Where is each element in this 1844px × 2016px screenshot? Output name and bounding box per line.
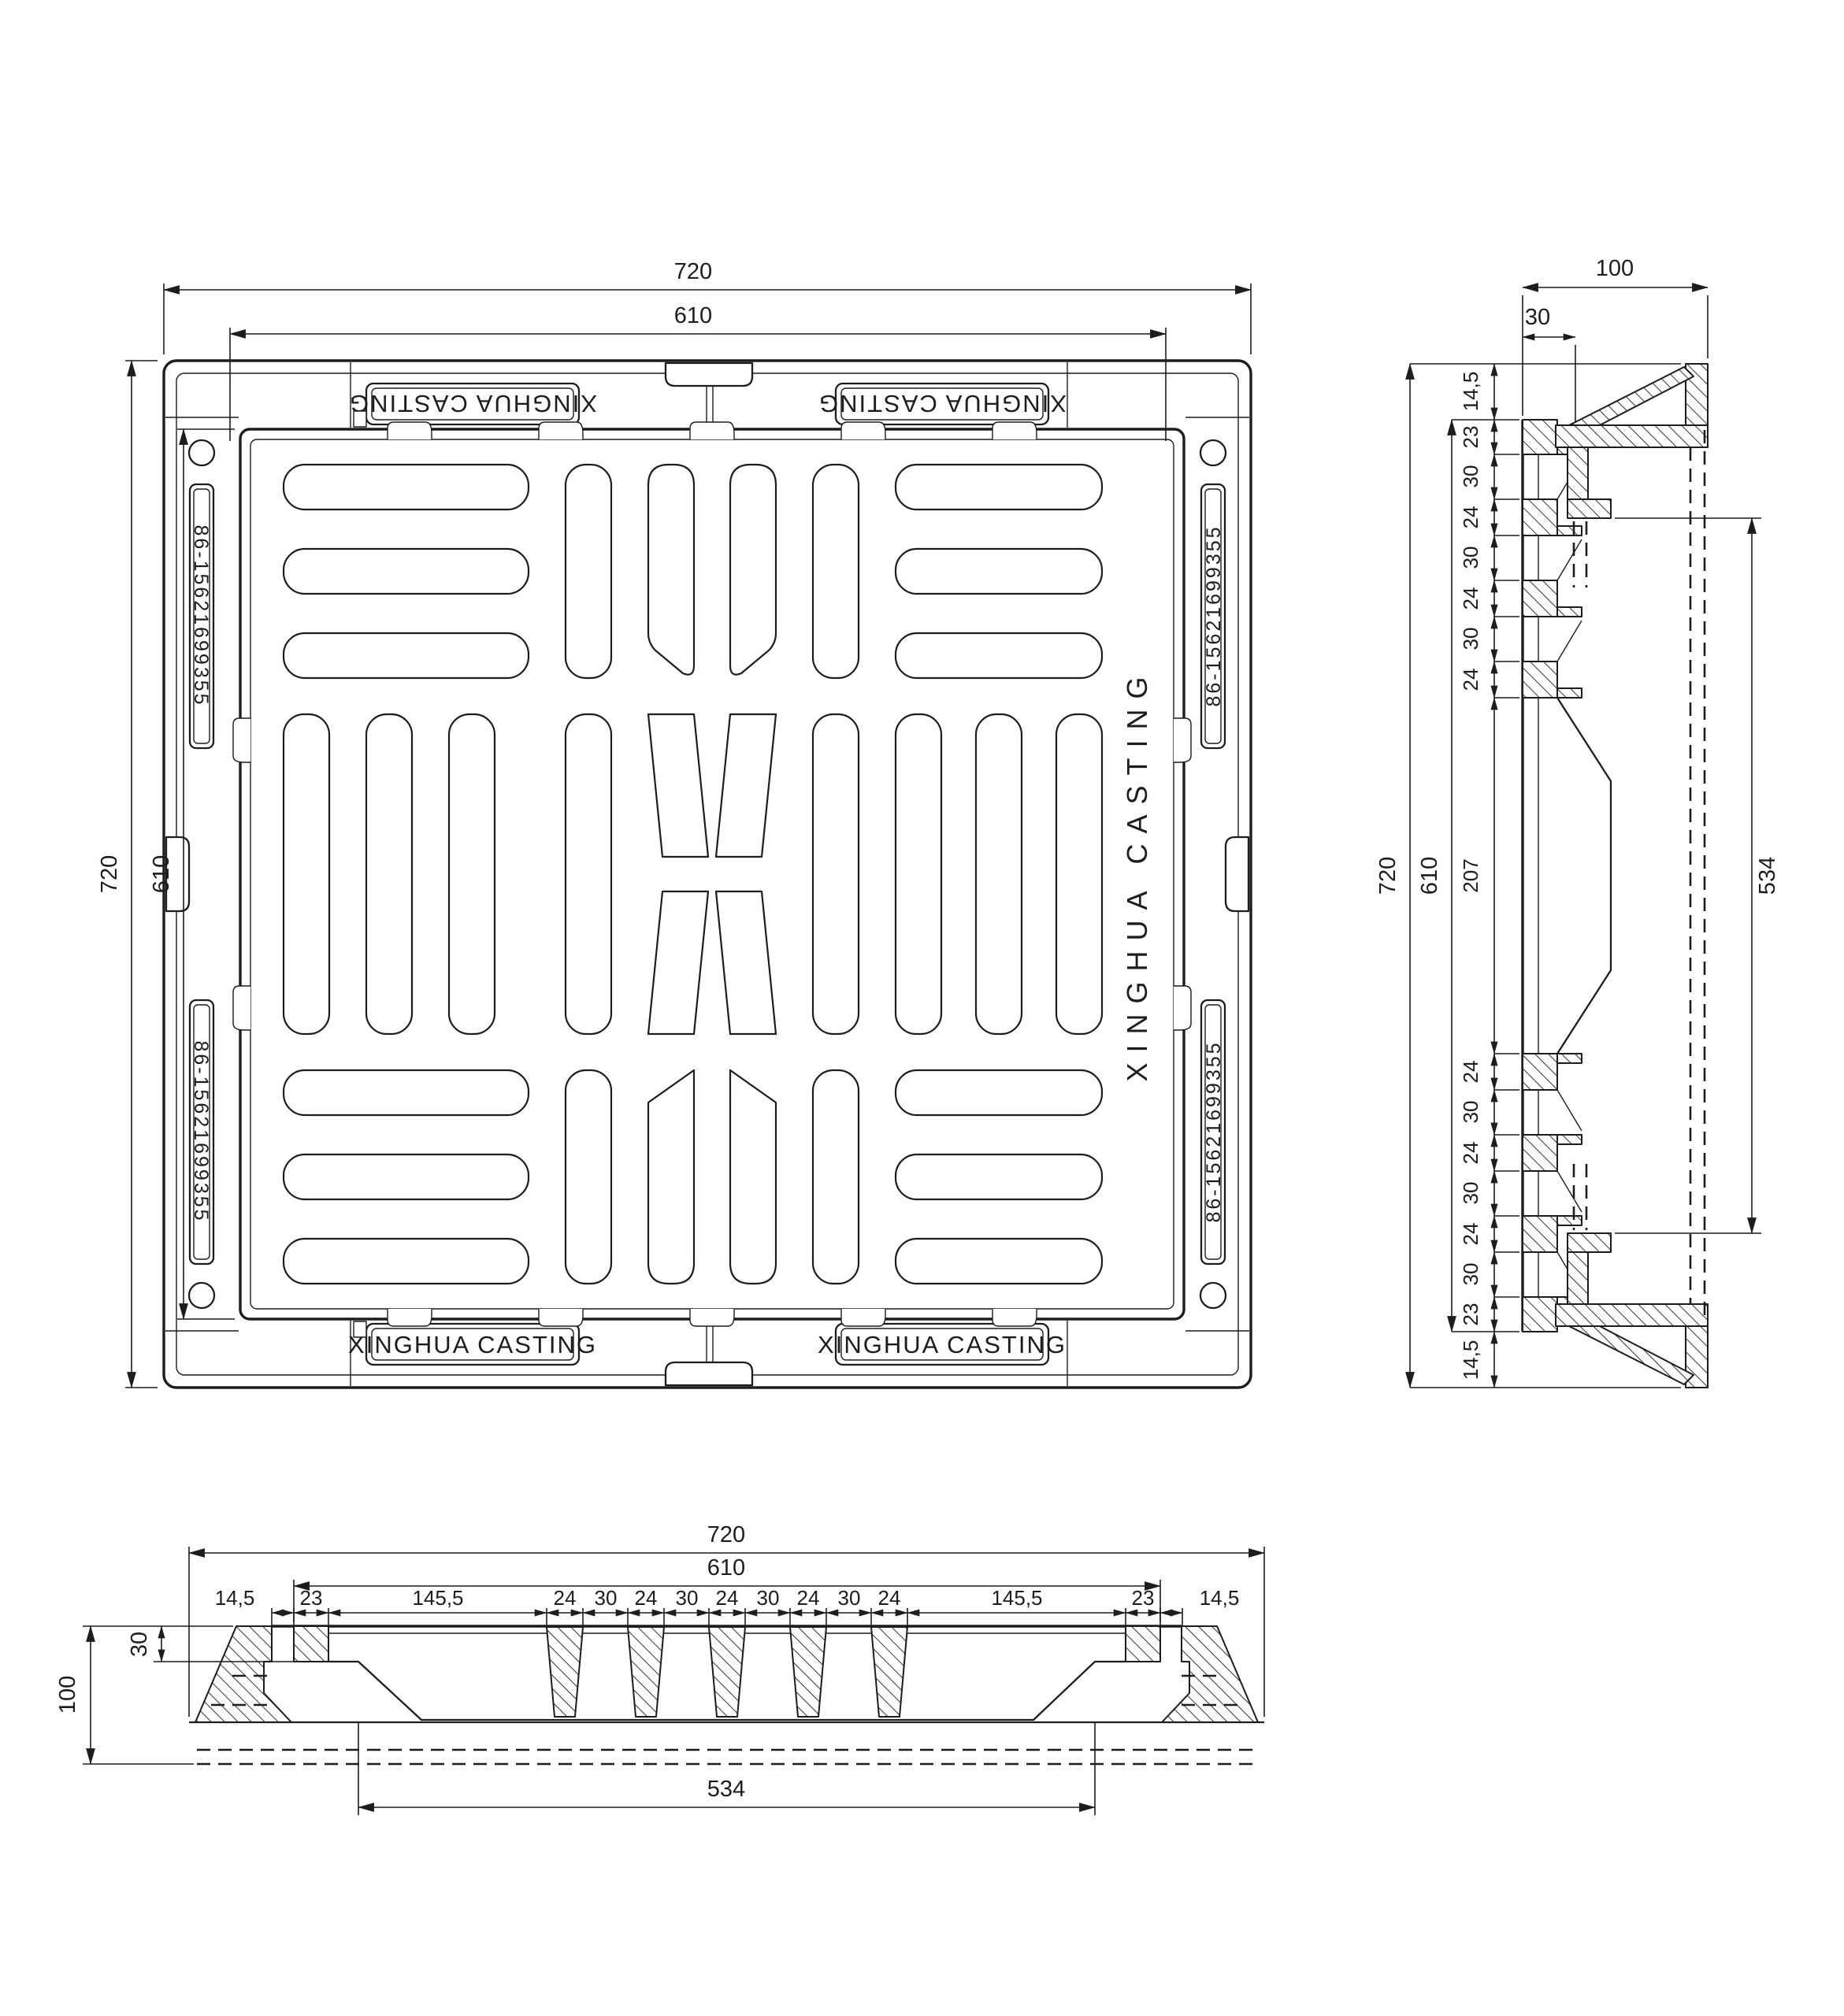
grate-slot xyxy=(813,1070,859,1284)
chain-label: 24 xyxy=(1459,1223,1482,1246)
phone-text: 86-15621699355 xyxy=(1203,524,1225,706)
phone-plaque-left-lower: 86-15621699355 xyxy=(190,1000,213,1264)
bolt-hole xyxy=(189,1283,214,1308)
rib-web xyxy=(1557,688,1582,698)
grate-slot xyxy=(896,714,941,1034)
dim-label: 720 xyxy=(97,855,122,893)
chain-label: 24 xyxy=(716,1586,739,1610)
side-view: 100 30 720 610 xyxy=(1375,256,1780,1388)
drawing-canvas: XINGHUA CASTING XINGHUA CASTING XINGHUA … xyxy=(0,0,1844,2016)
rib-section xyxy=(1523,661,1557,698)
grate-slot xyxy=(896,1070,1102,1115)
grate: XINGHUA CASTING xyxy=(233,411,1191,1337)
rib-section xyxy=(1523,580,1557,617)
rib-section xyxy=(1523,420,1557,454)
chain-label: 24 xyxy=(878,1586,901,1610)
grate-slot xyxy=(976,714,1022,1034)
chain-label: 23 xyxy=(1459,1303,1482,1326)
chain-label: 24 xyxy=(1459,1142,1482,1165)
grate-slot xyxy=(566,465,611,678)
dim-label: 610 xyxy=(707,1555,745,1581)
bolt xyxy=(354,411,366,427)
rib-web xyxy=(1557,1135,1582,1144)
grate-slot xyxy=(284,1070,529,1115)
grate-slot xyxy=(284,549,529,594)
chain-label: 24 xyxy=(1459,669,1482,691)
chain-label: 14,5 xyxy=(1459,1340,1482,1380)
grate-slot xyxy=(284,714,329,1034)
rib-web xyxy=(1557,526,1582,535)
chain-label: 24 xyxy=(1459,587,1482,610)
plaque-text: XINGHUA CASTING xyxy=(818,1331,1067,1358)
chain-label: 24 xyxy=(1459,506,1482,529)
grate-slot xyxy=(284,633,529,678)
rib-section xyxy=(628,1627,664,1717)
dim-label: 720 xyxy=(674,259,712,284)
grate-tab xyxy=(992,422,1037,439)
grate-tab xyxy=(992,1309,1037,1326)
grate-tab xyxy=(388,1309,432,1326)
rib-section xyxy=(709,1627,745,1717)
grate-slot xyxy=(284,465,529,510)
grate-engraving-text: XINGHUA CASTING xyxy=(1121,666,1153,1081)
chain-label: 30 xyxy=(1459,1263,1482,1286)
chain-label: 24 xyxy=(635,1586,658,1610)
rib-web xyxy=(1557,1216,1582,1225)
dim-label: 610 xyxy=(149,855,174,893)
rib-section xyxy=(1523,1135,1557,1171)
dim-label: 534 xyxy=(707,1777,745,1802)
chain-label: 24 xyxy=(554,1586,577,1610)
chain-label: 14,5 xyxy=(1459,372,1482,412)
grate-slot xyxy=(1056,714,1102,1034)
grate-slot xyxy=(896,465,1102,510)
grate-tab xyxy=(539,422,583,439)
plaque-text: XINGHUA CASTING xyxy=(818,390,1067,417)
phone-plaque-right-lower: 86-15621699355 xyxy=(1201,1000,1225,1264)
chain-label: 30 xyxy=(838,1586,861,1610)
grate-slot xyxy=(896,549,1102,594)
dim-label: 720 xyxy=(1375,857,1401,895)
dim-label: 610 xyxy=(1417,857,1442,895)
frame-wall xyxy=(1162,1626,1258,1722)
grate-slot xyxy=(813,465,859,678)
grate-slot xyxy=(566,714,611,1034)
drawing-page: XINGHUA CASTING XINGHUA CASTING XINGHUA … xyxy=(0,0,1844,2016)
frame-notch-right xyxy=(1226,837,1249,911)
brand-plaque-bottom-right: XINGHUA CASTING xyxy=(818,1324,1067,1365)
chain-label: 23 xyxy=(1132,1586,1155,1610)
grate-slot xyxy=(566,1070,611,1284)
grate-tab xyxy=(690,1309,734,1326)
chain-label: 30 xyxy=(757,1586,780,1610)
chain-label: 14,5 xyxy=(215,1586,255,1610)
grate-tab xyxy=(233,986,250,1030)
brand-plaque-bottom-left: XINGHUA CASTING xyxy=(348,1324,597,1365)
grate-tab xyxy=(1174,986,1191,1030)
grate-slot-angled xyxy=(730,1070,776,1284)
grate-slot xyxy=(449,714,495,1034)
grate-slot xyxy=(284,1239,529,1284)
chain-label: 30 xyxy=(1459,465,1482,488)
chain-label: 30 xyxy=(1459,1101,1482,1124)
rib-section xyxy=(871,1627,907,1717)
grate-slot xyxy=(366,714,412,1034)
bolt xyxy=(354,1321,366,1337)
rib-web xyxy=(1557,607,1582,617)
grate-tab xyxy=(233,718,250,762)
chain-label: 207 xyxy=(1459,858,1482,892)
frame-notch-bottom xyxy=(666,1362,752,1385)
plan-view: XINGHUA CASTING XINGHUA CASTING XINGHUA … xyxy=(97,259,1251,1388)
grate-slot-angled xyxy=(648,1070,694,1284)
grate-slot xyxy=(896,1239,1102,1284)
chain-label: 30 xyxy=(1459,628,1482,650)
rib-section xyxy=(1523,1297,1557,1332)
frame-rib-foot xyxy=(1568,1233,1611,1252)
chain-label: 30 xyxy=(595,1586,618,1610)
pan-outline xyxy=(1557,698,1611,1054)
dim-label: 30 xyxy=(1525,305,1550,330)
chain-label: 24 xyxy=(1459,1061,1482,1084)
rib-section xyxy=(1523,1054,1557,1090)
rib-section xyxy=(294,1626,328,1662)
dim-label: 610 xyxy=(674,303,712,328)
rib-section xyxy=(1126,1626,1160,1662)
plaque-text: XINGHUA CASTING xyxy=(348,1331,597,1358)
rib-section xyxy=(547,1627,583,1717)
phone-text: 86-15621699355 xyxy=(190,524,212,706)
phone-plaque-right-upper: 86-15621699355 xyxy=(1201,484,1225,748)
phone-plaque-left-upper: 86-15621699355 xyxy=(190,484,213,748)
grate-tab xyxy=(690,422,734,439)
chain-label: 30 xyxy=(676,1586,699,1610)
frame-notch-top xyxy=(666,363,752,386)
dim-label: 534 xyxy=(1755,857,1780,895)
grate-slot xyxy=(813,714,859,1034)
phone-text: 86-15621699355 xyxy=(190,1040,212,1222)
grate-tab xyxy=(388,422,432,439)
frame-flange xyxy=(1556,1304,1708,1326)
grate-slot xyxy=(284,1154,529,1199)
grate-tab xyxy=(841,422,885,439)
plaque-text: XINGHUA CASTING xyxy=(348,390,597,417)
rib-web xyxy=(1557,1054,1582,1063)
dim-label: 720 xyxy=(707,1522,745,1547)
dim-label: 100 xyxy=(55,1676,80,1714)
grate-slot xyxy=(896,1154,1102,1199)
grate-tab xyxy=(841,1309,885,1326)
grate-slot-angled xyxy=(730,465,776,675)
bolt-hole xyxy=(1200,440,1226,465)
chain-label: 30 xyxy=(1459,1182,1482,1205)
chain-label: 23 xyxy=(300,1586,323,1610)
chain-label: 24 xyxy=(797,1586,820,1610)
phone-text: 86-15621699355 xyxy=(1203,1040,1225,1222)
dim-label: 100 xyxy=(1596,256,1634,281)
frame-flange xyxy=(1556,425,1708,447)
chain-label: 14,5 xyxy=(1200,1586,1240,1610)
grate-slot xyxy=(896,633,1102,678)
chain-label: 145,5 xyxy=(991,1586,1042,1610)
chain-label: 23 xyxy=(1459,426,1482,449)
dim-label: 30 xyxy=(127,1632,152,1657)
frame-rib-foot xyxy=(1568,499,1611,518)
grate-tab xyxy=(539,1309,583,1326)
frame-wall xyxy=(195,1626,291,1722)
chain-label: 30 xyxy=(1459,547,1482,569)
bolt-hole xyxy=(1200,1283,1226,1308)
bottom-view: 720 610 xyxy=(55,1522,1264,1815)
brand-plaque-top-right: XINGHUA CASTING xyxy=(818,384,1067,424)
chain-label: 145,5 xyxy=(412,1586,463,1610)
rib-section xyxy=(1523,1216,1557,1252)
brand-plaque-top-left: XINGHUA CASTING xyxy=(348,384,597,424)
rib-section xyxy=(1523,499,1557,535)
bolt-hole xyxy=(189,440,214,465)
grate-tab xyxy=(1174,718,1191,762)
rib-section xyxy=(790,1627,826,1717)
grate-slot-angled xyxy=(648,465,694,675)
